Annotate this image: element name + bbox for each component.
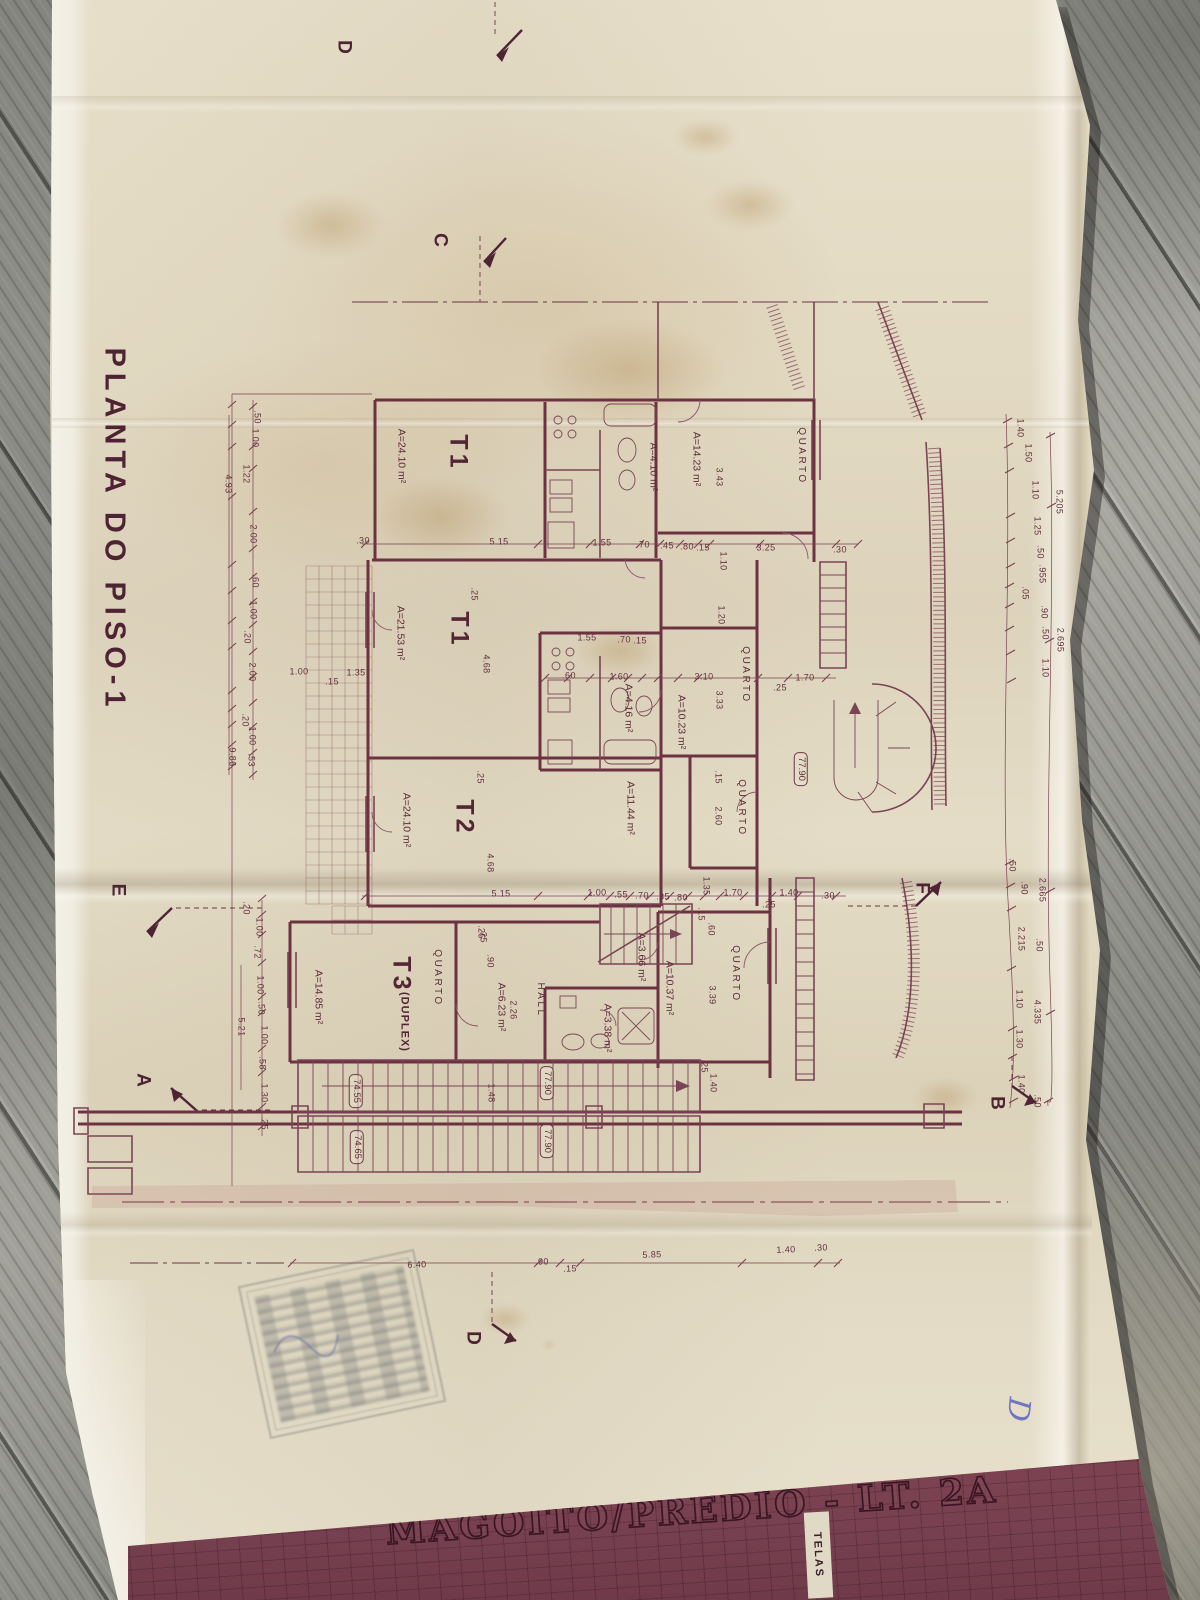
dimv-text: 5.205 — [1055, 490, 1064, 515]
dim-text: .15 — [633, 637, 647, 646]
quarto-text: QUARTO — [740, 646, 750, 703]
dimv-text: .20 — [241, 713, 250, 727]
dim-text: 1.70 — [723, 889, 742, 898]
dim-text: .70 — [635, 892, 649, 901]
dim-text: 1.60 — [609, 673, 628, 682]
dimv-text: .50 — [1041, 626, 1050, 640]
room-text: T1 — [447, 611, 472, 648]
paper-sheet: PLANTA DO PISO-1CDEAFBDT1T1T2T3(DUPLEX)Q… — [0, 0, 1200, 1600]
dim-text: 1.00 — [289, 668, 308, 677]
dimv-text: .955 — [1038, 564, 1047, 583]
dim-text: 5.15 — [489, 538, 508, 547]
room-text: T2 — [452, 799, 477, 836]
dimv-text: .25 — [470, 587, 479, 601]
dimv-text: .58 — [258, 1056, 267, 1070]
dimv-text: 3.33 — [715, 690, 724, 709]
annotation-layer: PLANTA DO PISO-1CDEAFBDT1T1T2T3(DUPLEX)Q… — [0, 0, 1200, 1600]
dim-text: .25 — [762, 901, 776, 910]
dimv-text: 1.10 — [1041, 658, 1050, 677]
dimv-text: 1.00 — [256, 975, 265, 994]
area-text: A=24.10 m² — [396, 429, 407, 484]
quarto-text: QUARTO — [796, 427, 806, 484]
dim-text: 1.35 — [346, 669, 365, 678]
dimv-text: 1.10 — [1015, 989, 1024, 1008]
dimv-text: 1.10 — [1031, 480, 1040, 499]
dim-text: .90 — [535, 1257, 549, 1266]
dim-text: .30 — [814, 1243, 828, 1252]
dim-text: .70 — [617, 636, 631, 645]
area-text: A=21.53 m² — [395, 606, 406, 661]
level-text: 77.90 — [540, 1124, 554, 1158]
dimv-text: 5.21 — [237, 1017, 246, 1036]
room-text: T1 — [446, 434, 471, 471]
dimv-text: 1.30 — [1015, 1029, 1024, 1048]
dim-text: 3.25 — [756, 544, 775, 553]
dimv-text: 2.665 — [1038, 878, 1047, 903]
marker-text: B — [988, 1096, 1007, 1110]
area-text: A=4.10 m² — [648, 443, 659, 492]
dim-text: 3.10 — [694, 673, 713, 682]
dim-text: .45 — [660, 542, 674, 551]
marker-text: D — [464, 1331, 483, 1345]
dimv-text: .90 — [1020, 881, 1029, 895]
dimv-text: 1.00 — [251, 428, 260, 447]
dimv-text: .50 — [1008, 858, 1017, 872]
dimv-text: 9.86 — [228, 747, 237, 766]
area-text: A=6.23 m² — [496, 983, 507, 1032]
ptitle-text: PLANTA DO PISO-1 — [100, 347, 129, 712]
level-text: 77.90 — [540, 1066, 554, 1100]
dim-text: .70 — [636, 541, 650, 550]
level-text: 77.90 — [794, 752, 808, 786]
dimv-text: 1.22 — [242, 464, 251, 483]
area-text: A=14.85 m² — [313, 970, 324, 1025]
dim-text: .35 — [656, 893, 670, 902]
dimv-text: 1.20 — [717, 605, 726, 624]
room-text: T3 — [389, 956, 414, 993]
area-text: A=10.37 m² — [664, 961, 675, 1016]
dimv-text: 2.00 — [248, 662, 257, 681]
dim-text: .30 — [833, 546, 847, 555]
photo-of-floor-plan: PLANTA DO PISO-1CDEAFBDT1T1T2T3(DUPLEX)Q… — [0, 0, 1200, 1600]
dim-text: 1.70 — [795, 674, 814, 683]
dimv-text: 4.68 — [486, 853, 495, 872]
area-text: A=4.16 m² — [623, 684, 634, 733]
marker-text: F — [913, 882, 932, 894]
dim-text: 1.55 — [577, 634, 596, 643]
dimv-text: .25 — [476, 770, 485, 784]
dimv-text: 1.48 — [487, 1083, 496, 1102]
dimv-text: .60 — [707, 922, 716, 936]
dimv-text: 2.00 — [249, 524, 258, 543]
dim-text: 5.15 — [491, 890, 510, 899]
dimv-text: 1.00 — [249, 600, 258, 619]
dim-text: 1.55 — [592, 539, 611, 548]
dim-text: .25 — [773, 684, 787, 693]
dimv-text: .25 — [260, 1116, 269, 1130]
dimv-text: 2.215 — [1017, 927, 1026, 952]
dimv-text: 4.93 — [224, 474, 233, 493]
dim-text: .15 — [696, 544, 710, 553]
telas-strip: TELAS — [804, 1511, 833, 1598]
quarto-text: QUARTO — [736, 779, 746, 836]
dimv-text: 1.35 — [702, 876, 711, 895]
dimv-text: 3.43 — [715, 467, 724, 486]
dimv-text: .25 — [700, 1059, 709, 1073]
dimv-text: 4.335 — [1033, 1000, 1042, 1025]
roomsub-text: (DUPLEX) — [399, 992, 410, 1052]
dimv-text: .20 — [243, 630, 252, 644]
dimv-text: .50 — [1035, 938, 1044, 952]
dimv-text: .50 — [1036, 545, 1045, 559]
dim-text: .55 — [614, 891, 628, 900]
quarto-text: HALL — [535, 982, 545, 1017]
dim-text: .30 — [821, 892, 835, 901]
dimv-text: 1.40 — [1016, 418, 1025, 437]
dimv-text: .60 — [251, 574, 260, 588]
dimv-text: .90 — [1040, 605, 1049, 619]
dimv-text: 4.68 — [482, 654, 491, 673]
dimv-text: 2.60 — [714, 806, 723, 825]
dimv-text: 1.00 — [255, 917, 264, 936]
marker-text: D — [335, 40, 354, 54]
dimv-text: 1.25 — [1033, 516, 1042, 535]
dimv-text: .15 — [697, 907, 706, 921]
dimv-text: 2.695 — [1056, 628, 1065, 653]
dim-text: .60 — [562, 672, 576, 681]
dimv-text: .50 — [1033, 1094, 1042, 1108]
dimv-text: 1.30 — [260, 1083, 269, 1102]
marker-text: C — [431, 233, 450, 247]
dimv-text: .72 — [253, 945, 262, 959]
area-text: A=24.10 m² — [401, 793, 412, 848]
dimv-text: 2.26 — [509, 1000, 518, 1019]
dim-text: .30 — [356, 537, 370, 546]
dim-text: .15 — [563, 1264, 577, 1273]
dim-text: .15 — [325, 678, 339, 687]
dim-text: 1.40 — [776, 1245, 795, 1255]
level-text: 74.55 — [349, 1074, 363, 1108]
dimv-text: .20 — [242, 901, 251, 915]
handwritten-mark: D — [999, 1396, 1036, 1424]
quarto-text: QUARTO — [432, 949, 442, 1006]
dimv-text: .05 — [1021, 586, 1030, 600]
dimv-text: 1.40 — [1017, 1074, 1026, 1093]
level-text: 74.65 — [350, 1130, 364, 1164]
dimv-text: .25 — [479, 929, 488, 943]
dimv-text: .50 — [257, 1001, 266, 1015]
area-text: A=3.66 m² — [636, 933, 647, 982]
area-text: A=14.23 m² — [691, 432, 702, 487]
marker-text: E — [109, 884, 128, 897]
area-text: A=10.23 m² — [676, 695, 687, 750]
dim-text: 5.85 — [642, 1250, 661, 1260]
dimv-text: 3.39 — [708, 985, 717, 1004]
dim-text: .80 — [680, 543, 694, 552]
dim-text: 1.00 — [587, 889, 606, 898]
dimv-text: 1.50 — [1024, 443, 1033, 462]
telas-label: TELAS — [811, 1532, 825, 1579]
dimv-text: .90 — [486, 954, 495, 968]
dimv-text: 1.00 — [260, 1025, 269, 1044]
area-text: A=11.44 m² — [625, 781, 636, 835]
area-text: A=3.38 m² — [602, 1004, 613, 1053]
quarto-text: QUARTO — [730, 945, 740, 1002]
dimv-text: 1.10 — [719, 551, 728, 570]
marker-text: A — [134, 1073, 153, 1087]
dim-text: .80 — [674, 894, 688, 903]
dimv-text: .50 — [253, 410, 262, 424]
dim-text: 1.40 — [779, 889, 798, 898]
dimv-text: 1.00 — [248, 726, 257, 745]
dimv-text: .15 — [714, 770, 723, 784]
dimv-text: 1.40 — [709, 1073, 718, 1092]
dimv-text: .53 — [247, 753, 256, 767]
